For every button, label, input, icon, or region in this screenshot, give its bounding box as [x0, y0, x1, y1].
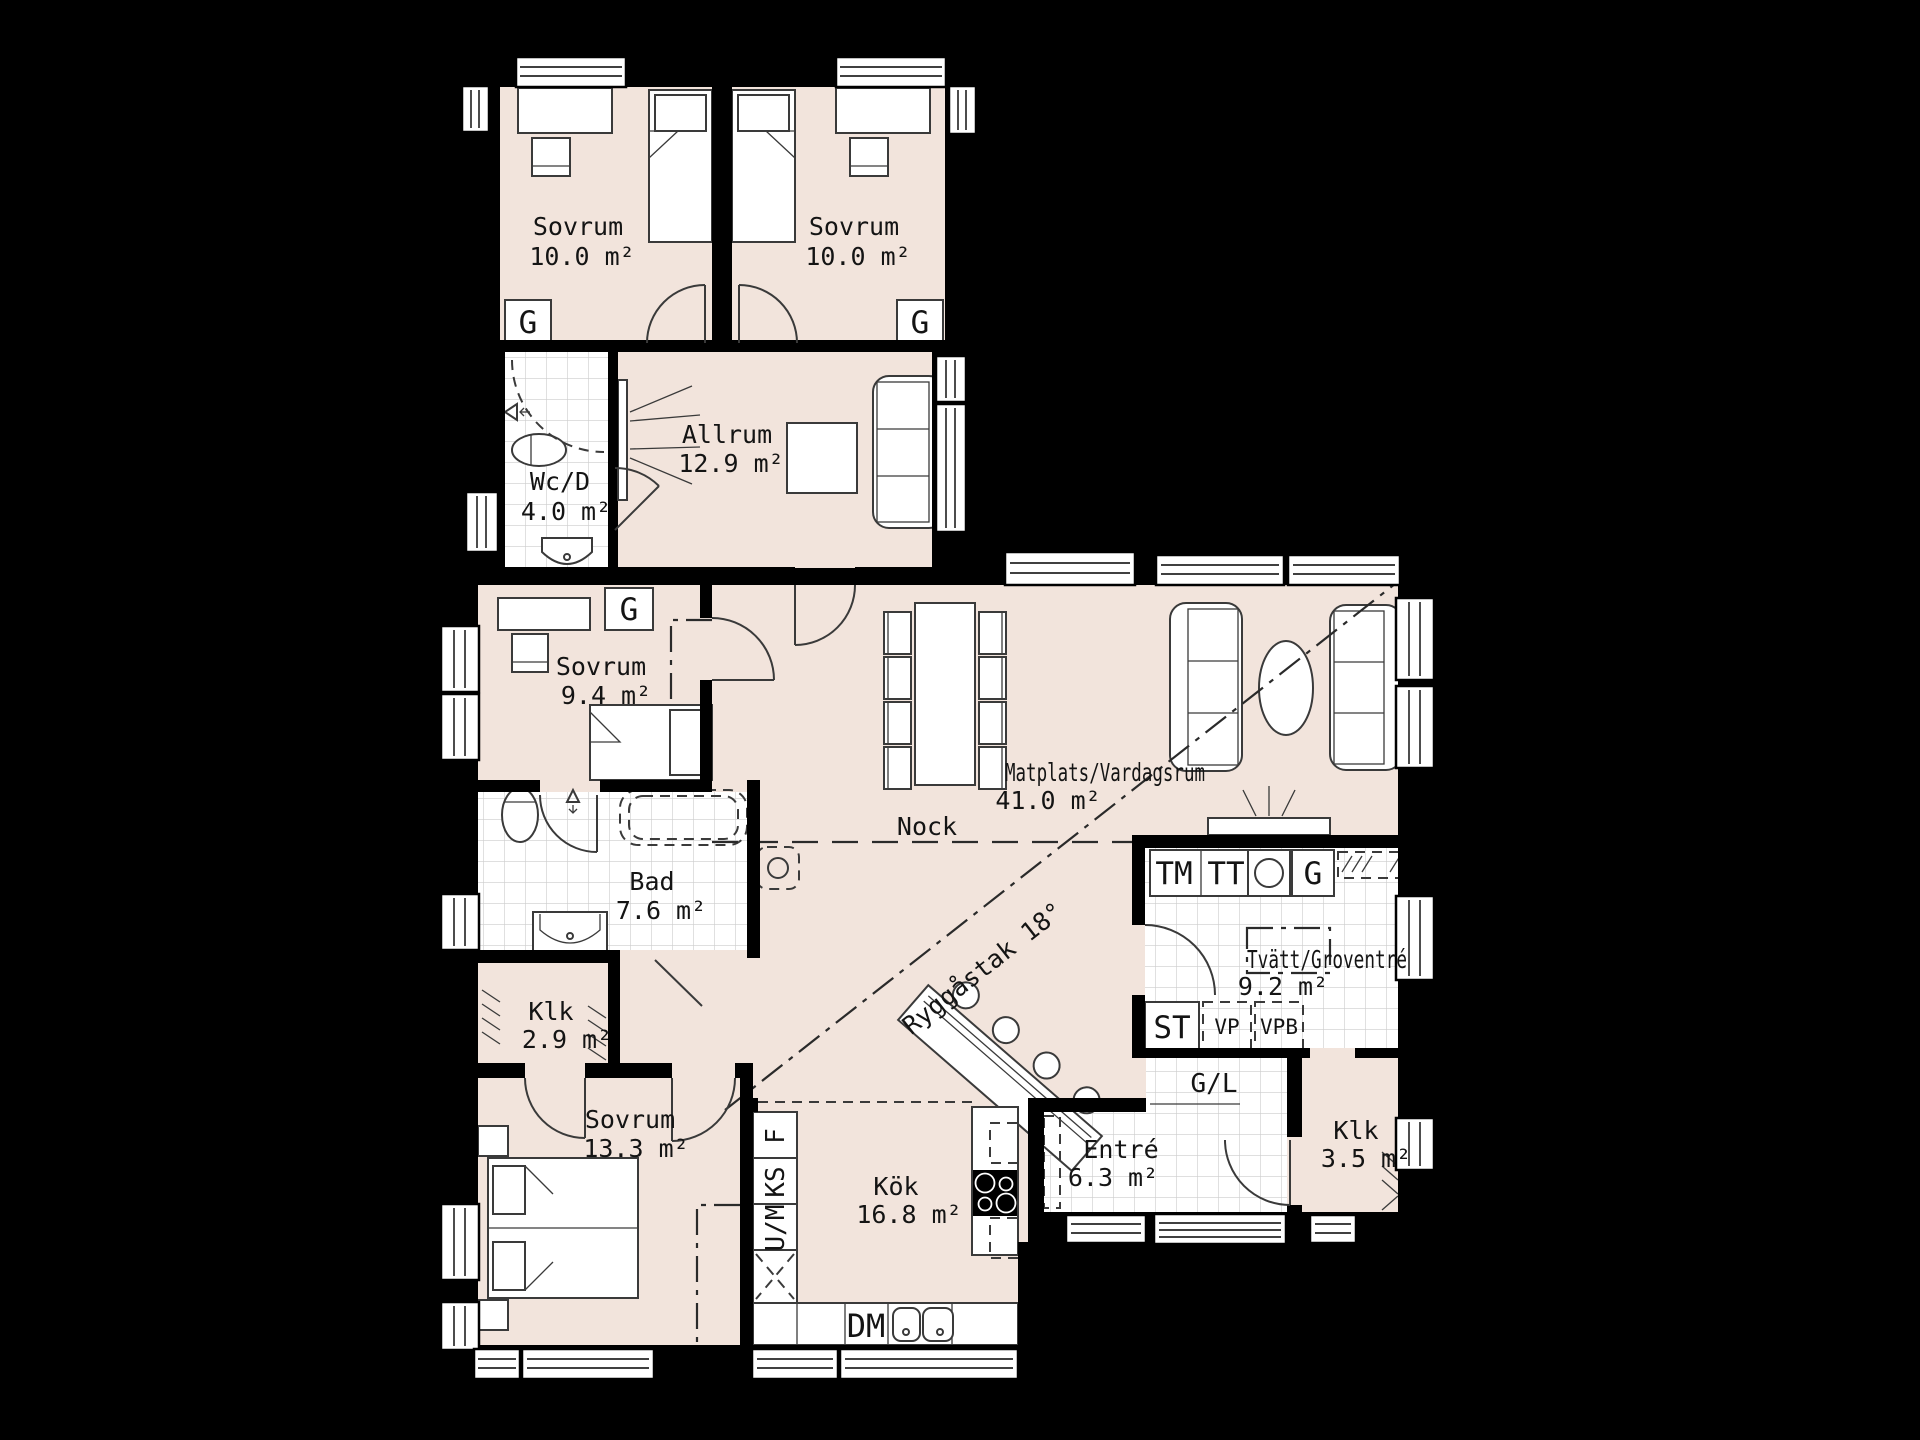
room-area: 4.0 m² [521, 497, 611, 526]
window [441, 694, 479, 760]
hob [973, 1170, 1017, 1216]
nock-label: Nock [897, 812, 957, 841]
room-area: 9.2 m² [1238, 972, 1328, 1001]
window [1396, 686, 1434, 768]
desk [498, 598, 590, 630]
room-label: Allrum [682, 420, 772, 449]
room-area: 12.9 m² [678, 449, 783, 478]
window [522, 1349, 654, 1379]
window [836, 57, 946, 87]
room-area: 7.6 m² [616, 896, 706, 925]
chair [532, 138, 570, 176]
dishwasher-marker: DM [847, 1307, 886, 1345]
room-area: 16.8 m² [856, 1200, 961, 1229]
room-area: 41.0 m² [995, 786, 1100, 815]
wardrobe-marker: G [519, 305, 538, 341]
chair [850, 138, 888, 176]
window [949, 86, 976, 134]
sofa [1170, 603, 1242, 771]
room-area: 2.9 m² [522, 1025, 612, 1054]
sink-basin [893, 1308, 920, 1341]
window [1156, 555, 1284, 585]
room-label: Matplats/Vardagsrum [1005, 758, 1205, 787]
room-area: 10.0 m² [529, 242, 634, 271]
kitchen-hob-counter [972, 1107, 1018, 1258]
room-label: Sovrum [585, 1105, 675, 1134]
window [441, 894, 479, 950]
chair [512, 634, 548, 672]
dryer-marker: TT [1207, 856, 1244, 892]
room-area: 13.3 m² [583, 1134, 688, 1163]
bed [590, 705, 712, 780]
window [1288, 555, 1400, 585]
window [1066, 1215, 1146, 1243]
room-label: Wc/D [530, 467, 590, 496]
entrance-door [1154, 1214, 1286, 1244]
sink-basin [923, 1308, 953, 1341]
kitchen-counter [753, 1303, 1018, 1345]
room-label: Sovrum [533, 212, 623, 241]
room-label: Klk [528, 997, 573, 1026]
bed [649, 90, 712, 242]
room-label: Tvätt/Groventré [1247, 945, 1407, 974]
window [936, 404, 966, 532]
room-area: 9.4 m² [561, 681, 651, 710]
washer-marker: TM [1155, 856, 1192, 892]
window [441, 1302, 479, 1350]
toilet [502, 788, 538, 842]
room-label: Sovrum [809, 212, 899, 241]
room-area: 6.3 m² [1068, 1163, 1158, 1192]
fridge-marker: KS [761, 1166, 791, 1197]
coffee-table [1259, 641, 1313, 735]
room-label: Kök [873, 1172, 918, 1201]
dining-set [884, 603, 1006, 789]
window [466, 492, 498, 552]
wardrobe-marker: G [1304, 856, 1323, 892]
room-label: Klk [1333, 1116, 1378, 1145]
window [441, 1204, 479, 1280]
wardrobe-marker: G [911, 305, 930, 341]
freezer-marker: F [761, 1128, 791, 1144]
room-label: Bad [629, 867, 674, 896]
wardrobe-linen-marker: G/L [1191, 1069, 1238, 1099]
toilet [512, 434, 566, 466]
washbasin-cabinet [533, 912, 607, 954]
room-label: Entré [1083, 1135, 1158, 1164]
table [787, 423, 857, 493]
cleaning-marker: ST [1153, 1010, 1190, 1046]
heat-pump-marker: VP [1214, 1015, 1239, 1039]
window [516, 57, 626, 87]
desk [836, 88, 930, 133]
window [1396, 598, 1434, 680]
window [462, 86, 489, 132]
room-label: Sovrum [556, 652, 646, 681]
window [752, 1349, 838, 1379]
sofa [1330, 605, 1402, 770]
floor-plan-drawing: Sovrum 10.0 m² Sovrum 10.0 m² Wc/D 4.0 m… [0, 0, 1920, 1440]
window [936, 356, 966, 402]
window [1005, 552, 1135, 585]
wardrobe-marker: G [620, 592, 639, 628]
window [1310, 1215, 1356, 1243]
room-area: 10.0 m² [805, 242, 910, 271]
room-area: 3.5 m² [1321, 1144, 1411, 1173]
window [840, 1349, 1018, 1379]
water-heater-marker: VPB [1260, 1015, 1298, 1039]
oven-micro-marker: U/M [761, 1205, 791, 1252]
window [474, 1349, 520, 1379]
window [441, 626, 479, 692]
bed [732, 90, 795, 242]
floor-plan-canvas: Sovrum 10.0 m² Sovrum 10.0 m² Wc/D 4.0 m… [0, 0, 1920, 1440]
desk [518, 88, 612, 133]
